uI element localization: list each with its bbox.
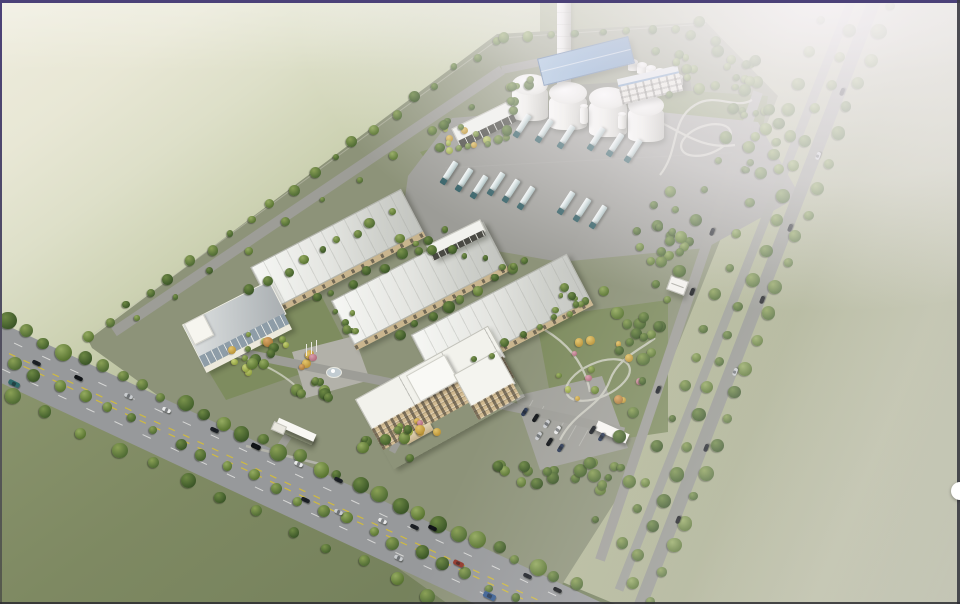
tree [181, 473, 196, 488]
tree [511, 263, 517, 269]
tree [456, 295, 465, 304]
tree [733, 302, 743, 312]
tree [654, 321, 663, 330]
tree [782, 103, 795, 116]
tree [369, 125, 379, 135]
flowering-shrub [415, 425, 424, 434]
tree [439, 120, 449, 130]
tree [406, 454, 414, 462]
tree [489, 353, 495, 359]
tree [512, 593, 520, 601]
tree [508, 82, 517, 91]
tree [251, 505, 262, 516]
tree [485, 141, 491, 147]
flowering-shrub [585, 375, 591, 381]
tree [137, 379, 148, 390]
tree [312, 377, 319, 384]
tree [244, 284, 255, 295]
tree [79, 351, 92, 364]
tree [469, 104, 475, 110]
tree [451, 63, 458, 70]
tree [712, 45, 724, 57]
tree [657, 247, 666, 256]
tree [746, 273, 760, 287]
tree [773, 118, 784, 129]
tree [632, 549, 644, 561]
tree [680, 380, 691, 391]
frame-top-border [0, 0, 960, 3]
flagpole [311, 342, 312, 354]
flagpole [316, 340, 317, 352]
tree [701, 186, 708, 193]
tree [640, 333, 648, 341]
tree [436, 557, 448, 569]
tree [843, 24, 856, 37]
tree [258, 434, 269, 445]
tree [297, 389, 306, 398]
tree [628, 407, 639, 418]
tree [118, 371, 128, 381]
tree [520, 331, 527, 338]
tree [651, 440, 663, 452]
tree [592, 516, 599, 523]
flowering-shrub [231, 359, 237, 365]
tree [699, 466, 714, 481]
tree [0, 312, 17, 329]
tree [724, 63, 731, 70]
tree [195, 449, 206, 460]
tree [263, 276, 273, 286]
flowering-shrub [591, 386, 599, 394]
tree [652, 47, 660, 55]
tree [314, 462, 330, 478]
tree [357, 442, 369, 454]
tree [788, 160, 798, 170]
tree [75, 428, 86, 439]
tree [751, 132, 760, 141]
flowering-shrub [242, 355, 248, 361]
tree [776, 189, 790, 203]
tree [652, 280, 660, 288]
tree [321, 544, 331, 554]
tree [465, 143, 471, 149]
tree [397, 248, 407, 258]
tree [55, 344, 72, 361]
tree [841, 101, 852, 112]
tree [715, 157, 722, 164]
tree [103, 402, 113, 412]
tree [380, 434, 391, 445]
tree [692, 353, 701, 362]
tree [636, 243, 644, 251]
tree [416, 545, 429, 558]
tree [409, 91, 420, 102]
tree [443, 301, 455, 313]
tree [804, 211, 814, 221]
tree [784, 258, 793, 267]
tree [27, 369, 40, 382]
tree [343, 325, 351, 333]
silo-roof [580, 104, 588, 109]
tree [605, 474, 612, 481]
tree [711, 439, 724, 452]
tree [248, 216, 256, 224]
tree [318, 505, 330, 517]
tree [682, 64, 692, 74]
tree [198, 409, 209, 420]
tree [217, 417, 231, 431]
tree [573, 301, 580, 308]
rendering-canvas [0, 0, 960, 604]
tree [20, 324, 33, 337]
silo [580, 106, 588, 124]
flowering-shrub [283, 342, 289, 348]
tree [208, 245, 219, 256]
flowering-shrub [433, 428, 441, 436]
tree [667, 538, 682, 553]
tree [112, 443, 128, 459]
tree [785, 130, 797, 142]
tree [162, 274, 173, 285]
tree [548, 31, 555, 38]
tree [399, 432, 411, 444]
tree [156, 393, 165, 402]
tree [97, 359, 110, 372]
tree [689, 492, 698, 501]
silo [618, 114, 626, 129]
tree [83, 331, 94, 342]
tree [247, 358, 258, 369]
tree [599, 286, 609, 296]
tree [178, 395, 194, 411]
tree [8, 357, 22, 371]
flagpole [306, 344, 307, 356]
tree [739, 84, 751, 96]
flowering-shrub [228, 346, 236, 354]
tree [639, 312, 649, 322]
tree [623, 475, 636, 488]
tree [571, 577, 584, 590]
tree [733, 74, 740, 81]
tree [499, 32, 510, 43]
tree [676, 248, 684, 256]
tree [683, 54, 690, 61]
tree [313, 293, 321, 301]
tree [519, 461, 530, 472]
tree [827, 80, 837, 90]
tree [448, 245, 457, 254]
tree [623, 27, 630, 34]
tree [341, 512, 352, 523]
tree [584, 457, 596, 469]
tree [552, 307, 559, 314]
tree [364, 218, 375, 229]
tree [37, 338, 48, 349]
tree [435, 143, 444, 152]
tree [493, 461, 502, 470]
tree [666, 91, 673, 98]
tree [393, 110, 403, 120]
tree [743, 141, 755, 153]
tree [548, 571, 559, 582]
tree [530, 559, 547, 576]
tree [473, 286, 483, 296]
tree [80, 390, 92, 402]
tree [745, 198, 754, 207]
tree [760, 123, 772, 135]
flowering-shrub [473, 131, 479, 137]
flowering-shrub [614, 395, 623, 404]
frame-left-border [0, 0, 2, 604]
tree [458, 124, 464, 130]
tree [669, 415, 676, 422]
fountain [326, 367, 342, 378]
tree [531, 478, 543, 490]
tree [656, 256, 667, 267]
tree [395, 330, 406, 341]
tree [600, 29, 607, 36]
tree [639, 377, 646, 384]
tree [415, 247, 423, 255]
tree [741, 112, 748, 119]
tree [804, 46, 815, 57]
tree [483, 255, 488, 260]
tree [692, 408, 706, 422]
tree [664, 296, 671, 303]
tree [267, 349, 276, 358]
tree [494, 541, 506, 553]
tree [346, 136, 357, 147]
tree [772, 138, 780, 146]
tree [709, 288, 721, 300]
tree [670, 467, 684, 481]
tree [357, 177, 363, 183]
tree [673, 265, 685, 277]
tree [289, 185, 300, 196]
tree [245, 247, 253, 255]
tree [617, 537, 629, 549]
tree [760, 245, 773, 258]
tree [789, 230, 801, 242]
tree [641, 478, 650, 487]
tree [393, 498, 409, 514]
tree [5, 388, 21, 404]
tree [824, 159, 834, 169]
tree [134, 315, 140, 321]
tree [517, 477, 527, 487]
tree [623, 319, 633, 329]
tree [413, 241, 419, 247]
tree [588, 469, 601, 482]
tree [626, 338, 634, 346]
tree [649, 25, 658, 34]
tree [871, 24, 887, 40]
tree [694, 83, 705, 94]
tree [738, 362, 752, 376]
tree [371, 486, 388, 503]
tree [122, 301, 130, 309]
tree [502, 125, 512, 135]
tree [456, 145, 462, 151]
tree [747, 159, 754, 166]
tree [750, 55, 761, 66]
tree [865, 54, 878, 67]
tree [359, 555, 370, 566]
tree [762, 306, 776, 320]
flowering-shrub [575, 396, 580, 401]
flowering-shrub [586, 336, 595, 345]
storage-tank-large-roof [549, 82, 587, 104]
silo-roof [618, 112, 626, 117]
tree [270, 444, 287, 461]
tree [742, 60, 751, 69]
tree [715, 357, 724, 366]
tree [613, 430, 626, 443]
tree [214, 492, 226, 504]
tree [55, 380, 67, 392]
tree [571, 30, 579, 38]
tree [523, 31, 533, 41]
tree [507, 97, 515, 105]
tree [617, 464, 625, 472]
tree [726, 264, 734, 272]
tree [633, 504, 642, 513]
tree [499, 264, 506, 271]
tree [657, 567, 667, 577]
tree [637, 353, 649, 365]
tree [675, 231, 687, 243]
flowering-shrub [575, 338, 583, 346]
tree [234, 426, 249, 441]
tree [404, 425, 413, 434]
tree [732, 229, 740, 237]
tree [176, 439, 187, 450]
tree [362, 266, 371, 275]
tree [723, 414, 732, 423]
tree [147, 289, 155, 297]
tree [568, 292, 575, 299]
tree [380, 264, 389, 273]
flowering-shrub [565, 386, 572, 393]
tree [106, 318, 115, 327]
tree [611, 307, 624, 320]
tree [265, 199, 274, 208]
tree [349, 280, 358, 289]
